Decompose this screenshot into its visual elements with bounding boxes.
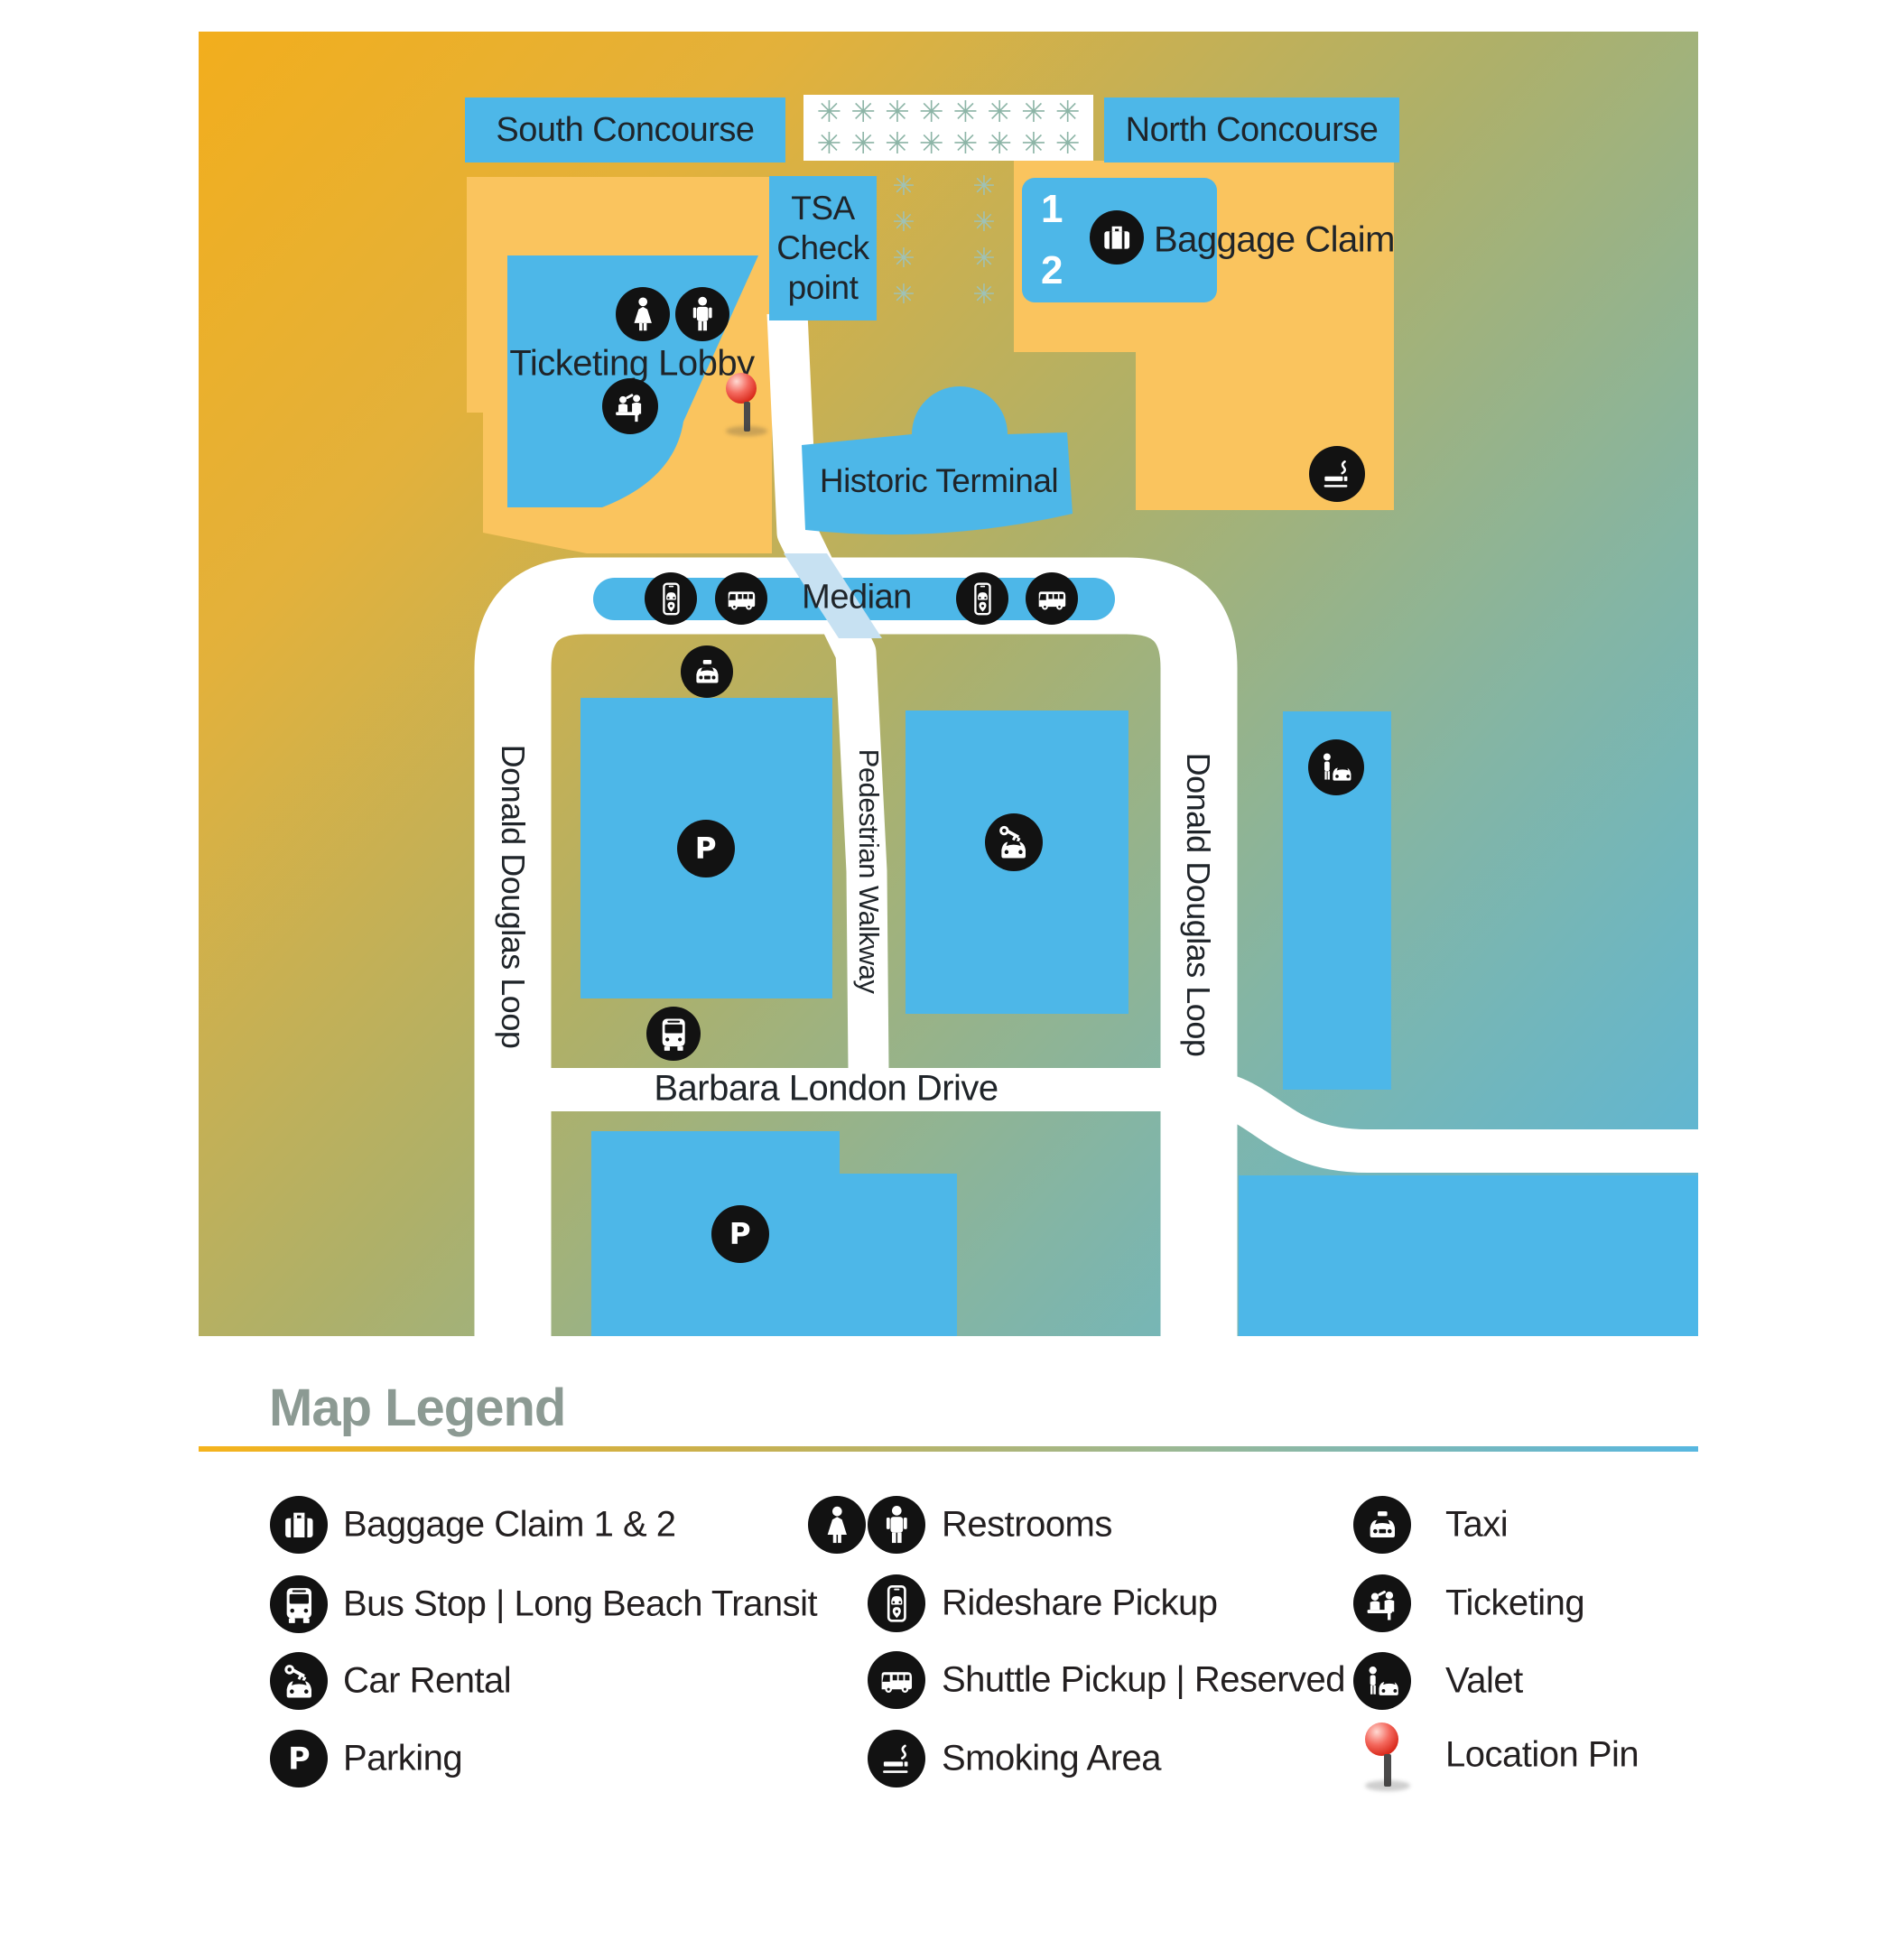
south-concourse-label: South Concourse [496, 111, 754, 150]
parking-icon [270, 1730, 328, 1787]
shuttle-icon [868, 1651, 925, 1709]
median-label: Median [802, 579, 912, 617]
south-concourse-box: South Concourse [465, 97, 785, 162]
location-pin-ball [1365, 1722, 1398, 1756]
asterisk-decoration: ✳ [972, 277, 995, 313]
southeast-lot [1239, 1175, 1698, 1336]
donald-douglas-loop-label-east: Donald Douglas Loop [1179, 753, 1217, 1057]
location-pin-ball [726, 373, 757, 404]
asterisk-decoration: ✳ [987, 97, 1012, 127]
restroom-woman-icon [616, 287, 670, 341]
south-parking-lot [591, 1131, 957, 1336]
location-pin-shadow [1365, 1780, 1410, 1791]
asterisk-decoration: ✳ [1021, 128, 1046, 159]
taxi-icon [1353, 1496, 1411, 1554]
asterisk-decoration: ✳ [892, 277, 915, 313]
asterisk-decoration: ✳ [817, 128, 842, 159]
smoking-icon [1309, 446, 1365, 502]
asterisk-decoration: ✳ [817, 97, 842, 127]
taxi-icon [681, 645, 733, 698]
legend-label: Ticketing [1445, 1583, 1584, 1624]
asterisk-row: ✳✳✳✳✳✳✳✳ [817, 97, 1081, 127]
asterisk-decoration: ✳ [919, 97, 944, 127]
location-pin [726, 373, 767, 436]
restroom-man-icon [675, 287, 729, 341]
asterisk-decoration: ✳ [892, 241, 915, 277]
asterisk-decoration: ✳ [987, 128, 1012, 159]
airport-map: South Concourse ✳✳✳✳✳✳✳✳ ✳✳✳✳✳✳✳✳ North … [199, 32, 1698, 1336]
asterisk-decoration: ✳ [972, 169, 995, 205]
asterisk-decoration: ✳ [850, 128, 876, 159]
map-shapes [199, 32, 1698, 1336]
tsa-label-line1: TSA [791, 189, 854, 228]
valet-icon [1308, 739, 1364, 795]
gate-asterisk-box: ✳✳✳✳✳✳✳✳ ✳✳✳✳✳✳✳✳ [803, 95, 1093, 161]
tsa-label-line3: point [788, 268, 859, 308]
historic-terminal-building [802, 386, 1073, 534]
baggage-claim-label: Baggage Claim [1154, 220, 1395, 261]
car-rental-icon [270, 1652, 328, 1710]
rideshare-icon [956, 572, 1008, 625]
baggage-carousel-1: 1 [1041, 187, 1063, 232]
tsa-label-line2: Check [776, 228, 868, 268]
valet-icon [1353, 1652, 1411, 1710]
north-concourse-label: North Concourse [1126, 111, 1379, 150]
rideshare-icon [645, 572, 697, 625]
baggage-carousel-2: 2 [1041, 248, 1063, 293]
asterisk-column: ✳✳✳✳ [888, 169, 919, 313]
legend-label: Restrooms [942, 1505, 1112, 1546]
legend-label: Rideshare Pickup [942, 1583, 1218, 1624]
legend-label: Taxi [1445, 1505, 1508, 1546]
asterisk-decoration: ✳ [953, 97, 979, 127]
legend-divider [199, 1446, 1698, 1452]
barbara-london-drive-label: Barbara London Drive [654, 1069, 998, 1110]
legend-title: Map Legend [269, 1378, 565, 1438]
legend-label: Location Pin [1445, 1735, 1639, 1776]
restroom-man-icon [868, 1496, 925, 1554]
asterisk-decoration: ✳ [953, 128, 979, 159]
car-rental-icon [985, 813, 1043, 871]
asterisk-decoration: ✳ [892, 205, 915, 241]
asterisk-decoration: ✳ [885, 128, 910, 159]
parking-icon [677, 820, 735, 877]
shuttle-icon [1026, 572, 1078, 625]
tsa-checkpoint-box: TSA Check point [769, 176, 877, 320]
asterisk-decoration: ✳ [972, 205, 995, 241]
ticketing-icon [602, 378, 658, 434]
asterisk-row: ✳✳✳✳✳✳✳✳ [817, 128, 1081, 159]
baggage-icon [1090, 210, 1144, 265]
asterisk-decoration: ✳ [972, 241, 995, 277]
legend-label: Bus Stop | Long Beach Transit [343, 1584, 817, 1625]
asterisk-decoration: ✳ [1055, 97, 1081, 127]
rideshare-icon [868, 1574, 925, 1632]
legend-label: Parking [343, 1739, 462, 1779]
asterisk-decoration: ✳ [850, 97, 876, 127]
bus-icon [270, 1575, 328, 1633]
asterisk-column: ✳✳✳✳ [969, 169, 999, 313]
legend-label: Car Rental [343, 1661, 511, 1702]
asterisk-decoration: ✳ [885, 97, 910, 127]
legend-label: Shuttle Pickup | Reserved [942, 1660, 1345, 1701]
asterisk-decoration: ✳ [1055, 128, 1081, 159]
shuttle-icon [715, 572, 767, 625]
smoking-icon [868, 1730, 925, 1787]
ticketing-icon [1353, 1574, 1411, 1632]
asterisk-decoration: ✳ [1021, 97, 1046, 127]
asterisk-decoration: ✳ [892, 169, 915, 205]
page: South Concourse ✳✳✳✳✳✳✳✳ ✳✳✳✳✳✳✳✳ North … [0, 0, 1904, 1950]
location-pin-shadow [726, 426, 767, 436]
baggage-icon [270, 1496, 328, 1554]
restroom-woman-icon [808, 1496, 866, 1554]
parking-icon [711, 1205, 769, 1263]
asterisk-decoration: ✳ [919, 128, 944, 159]
location-pin [1365, 1722, 1410, 1791]
north-concourse-box: North Concourse [1104, 97, 1399, 162]
legend-label: Smoking Area [942, 1739, 1161, 1779]
pedestrian-walkway-label: Pedestrian Walkway [852, 749, 885, 994]
bus-icon [646, 1007, 701, 1061]
legend-label: Baggage Claim 1 & 2 [343, 1505, 676, 1546]
historic-terminal-label: Historic Terminal [820, 462, 1058, 500]
donald-douglas-loop-label-west: Donald Douglas Loop [494, 745, 532, 1049]
legend-label: Valet [1445, 1661, 1523, 1702]
